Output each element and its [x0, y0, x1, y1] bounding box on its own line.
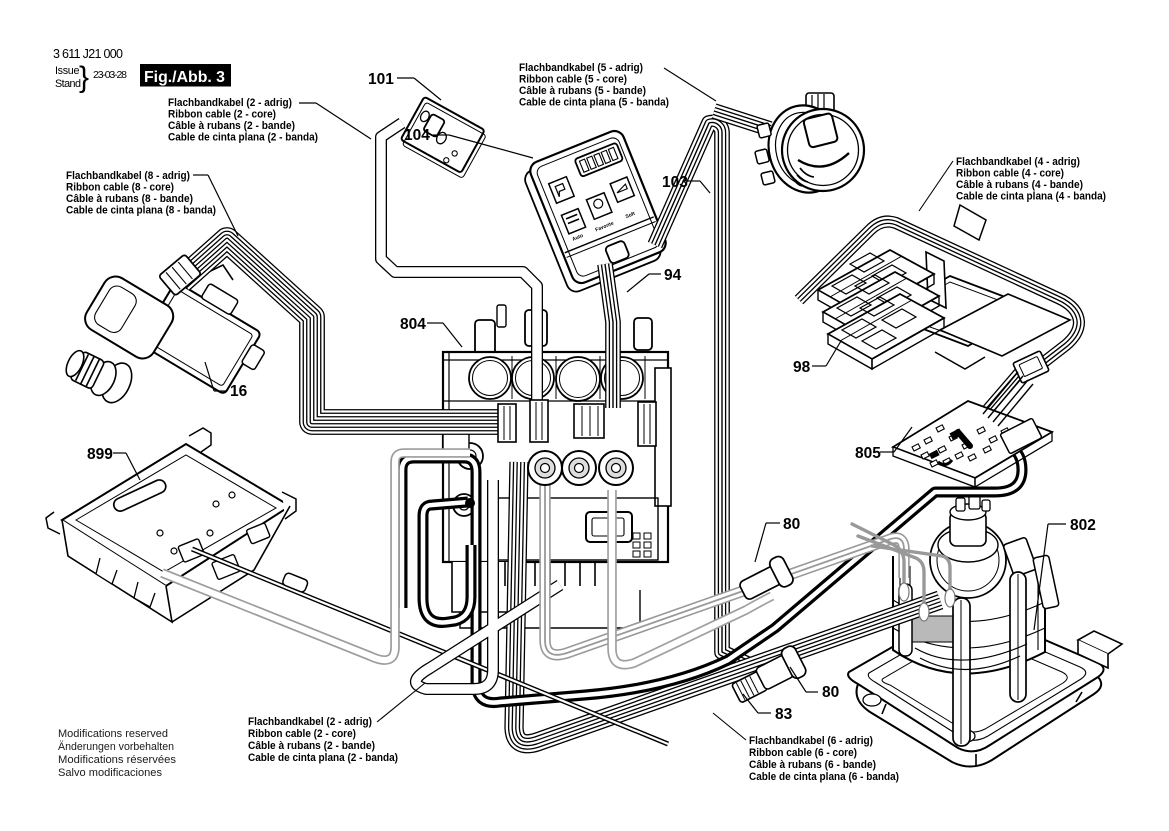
- svg-text:Câble à rubans (4 - bande): Câble à rubans (4 - bande): [956, 179, 1083, 191]
- svg-text:Cable de cinta plana (8 - band: Cable de cinta plana (8 - banda): [66, 205, 216, 217]
- svg-text:Câble à rubans (2 - bande): Câble à rubans (2 - bande): [168, 120, 295, 132]
- svg-text:80: 80: [783, 516, 800, 533]
- svg-text:Ribbon cable (2 - core): Ribbon cable (2 - core): [168, 109, 276, 121]
- svg-text:802: 802: [1070, 517, 1096, 534]
- svg-text:Änderungen vorbehalten: Änderungen vorbehalten: [58, 741, 174, 753]
- svg-text:Cable de cinta plana (2 - band: Cable de cinta plana (2 - banda): [248, 752, 398, 764]
- svg-text:Flachbandkabel (2 - adrig): Flachbandkabel (2 - adrig): [248, 716, 372, 728]
- svg-text:Câble à rubans (8 - bande): Câble à rubans (8 - bande): [66, 193, 193, 205]
- svg-text:Flachbandkabel (5 - adrig): Flachbandkabel (5 - adrig): [519, 62, 643, 74]
- svg-text:Modifications réservées: Modifications réservées: [58, 754, 176, 766]
- svg-text:805: 805: [855, 445, 881, 462]
- svg-text:103: 103: [662, 174, 688, 191]
- svg-text:Ribbon cable (2 - core): Ribbon cable (2 - core): [248, 728, 356, 740]
- svg-text:Cable de cinta plana (4 - band: Cable de cinta plana (4 - banda): [956, 191, 1106, 203]
- svg-text:83: 83: [775, 706, 793, 723]
- svg-text:104: 104: [404, 127, 430, 144]
- svg-text:23-03-28: 23-03-28: [93, 69, 127, 81]
- svg-text:Salvo modificaciones: Salvo modificaciones: [58, 767, 162, 779]
- svg-text:94: 94: [664, 267, 682, 284]
- svg-text:Modifications reserved: Modifications reserved: [58, 728, 168, 740]
- svg-text:Cable de cinta plana (6 - band: Cable de cinta plana (6 - banda): [749, 771, 899, 783]
- svg-text:Câble à rubans (6 - bande): Câble à rubans (6 - bande): [749, 759, 876, 771]
- svg-text:Cable de cinta plana (5 - band: Cable de cinta plana (5 - banda): [519, 97, 669, 109]
- svg-text:Ribbon cable (8 - core): Ribbon cable (8 - core): [66, 182, 174, 194]
- svg-text:80: 80: [822, 684, 839, 701]
- svg-text:Stand: Stand: [55, 78, 81, 90]
- svg-text:16: 16: [230, 383, 248, 400]
- svg-text:98: 98: [793, 359, 811, 376]
- svg-text:Cable de cinta plana (2 - band: Cable de cinta plana (2 - banda): [168, 132, 318, 144]
- svg-text:Flachbandkabel (4 - adrig): Flachbandkabel (4 - adrig): [956, 156, 1080, 168]
- svg-text:899: 899: [87, 446, 113, 463]
- svg-text:Ribbon cable (5 - core): Ribbon cable (5 - core): [519, 74, 627, 86]
- svg-text:Flachbandkabel (2 - adrig): Flachbandkabel (2 - adrig): [168, 97, 292, 109]
- svg-text:3 611 J21 000: 3 611 J21 000: [53, 47, 123, 61]
- svg-text:Flachbandkabel (6 - adrig): Flachbandkabel (6 - adrig): [749, 735, 873, 747]
- svg-text:Ribbon cable (6 - core): Ribbon cable (6 - core): [749, 747, 857, 759]
- svg-text:101: 101: [368, 71, 394, 88]
- svg-text:}: }: [79, 61, 89, 94]
- svg-text:Ribbon cable (4 - core): Ribbon cable (4 - core): [956, 168, 1064, 180]
- svg-text:Câble à rubans (5 - bande): Câble à rubans (5 - bande): [519, 85, 646, 97]
- svg-text:Issue: Issue: [55, 65, 80, 77]
- svg-text:804: 804: [400, 316, 426, 333]
- svg-text:Câble à rubans (2 - bande): Câble à rubans (2 - bande): [248, 740, 375, 752]
- svg-text:Fig./Abb. 3: Fig./Abb. 3: [144, 69, 225, 86]
- svg-text:Flachbandkabel (8 - adrig): Flachbandkabel (8 - adrig): [66, 170, 190, 182]
